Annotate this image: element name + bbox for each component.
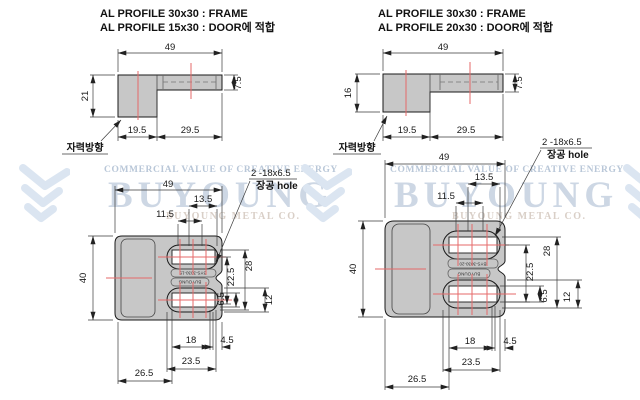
dim-115: 11.5 — [437, 191, 455, 202]
magnet-direction-label: 자력방향 — [67, 141, 105, 154]
dim-65: 6.5 — [216, 292, 227, 305]
right-title-line2: AL PROFILE 20x30 : DOOR에 적합 — [378, 20, 553, 34]
dim-135: 13.5 — [194, 194, 213, 205]
magnet-direction-label: 자력방향 — [339, 141, 377, 154]
dim-45: 4.5 — [503, 336, 516, 347]
dim-18: 18 — [186, 335, 197, 346]
left-side-dimension-lines — [93, 53, 234, 137]
marking-model-text: BYS-3030-20 — [459, 262, 487, 267]
dim-foot-right: 29.5 — [181, 125, 200, 136]
left-side-view: 49 21 7.5 19.5 29.5 자력방향 — [62, 42, 244, 154]
slot-note-line1: 2 -18x6.5 — [251, 168, 291, 179]
dim-45: 4.5 — [220, 335, 233, 346]
dim-12: 12 — [264, 295, 275, 306]
dim-12: 12 — [562, 292, 573, 303]
slot-note-line2: 장공 hole — [256, 179, 298, 192]
dim-18: 18 — [465, 336, 476, 347]
left-plan-view: BYS-3030-15 BUYOUNG — [78, 168, 298, 384]
dim-235: 23.5 — [462, 357, 481, 368]
slot-note-leader — [495, 150, 541, 236]
dim-28: 28 — [244, 261, 255, 272]
dim-65: 6.5 — [539, 289, 550, 302]
right-side-extension-lines — [355, 49, 519, 141]
right-profile-titles: AL PROFILE 30x30 : FRAME AL PROFILE 20x3… — [378, 8, 553, 34]
left-title-line1: AL PROFILE 30x30 : FRAME — [100, 8, 248, 20]
dim-foot-left: 19.5 — [128, 125, 147, 136]
dim-225: 22.5 — [525, 263, 536, 282]
slot-note-line2: 장공 hole — [547, 148, 589, 161]
left-profile-titles: AL PROFILE 30x30 : FRAME AL PROFILE 15x3… — [100, 8, 275, 34]
left-side-extension-lines — [90, 49, 238, 141]
dim-235: 23.5 — [182, 356, 201, 367]
dim-265: 26.5 — [135, 368, 154, 379]
dim-135: 13.5 — [475, 172, 494, 183]
drawing-sheet: COMMERCIAL VALUE OF CREATIVE ENERGY BUYO… — [0, 0, 640, 400]
dim-40: 40 — [78, 273, 89, 284]
slot-note-line1: 2 -18x6.5 — [542, 137, 582, 148]
dim-width: 49 — [165, 42, 176, 53]
dim-plan-width: 49 — [163, 179, 174, 190]
right-title-line1: AL PROFILE 30x30 : FRAME — [378, 8, 526, 20]
right-plan-view: BYS-3030-20 BUYOUNG — [348, 137, 592, 390]
left-side-profile-shape — [118, 75, 222, 117]
dim-40: 40 — [348, 264, 359, 275]
dim-lip: 7.5 — [233, 76, 244, 89]
dim-225: 22.5 — [226, 268, 237, 287]
dim-265: 26.5 — [408, 374, 427, 385]
right-side-view: 49 16 7.5 19.5 29.5 자력방향 — [333, 42, 525, 154]
dim-28: 28 — [542, 246, 553, 257]
dim-foot-right: 29.5 — [457, 125, 476, 136]
marking-brand-text: BUYOUNG — [178, 280, 201, 285]
right-side-dimension-lines — [357, 53, 515, 137]
dim-plan-width: 49 — [439, 152, 450, 163]
technical-drawing: AL PROFILE 30x30 : FRAME AL PROFILE 15x3… — [0, 0, 640, 400]
left-title-line2: AL PROFILE 15x30 : DOOR에 적합 — [100, 20, 275, 34]
dim-lip: 7.5 — [514, 76, 525, 89]
marking-brand-text: BUYOUNG — [457, 272, 480, 277]
dim-115: 11.5 — [156, 209, 174, 220]
dim-height: 16 — [343, 88, 354, 99]
right-side-profile-shape — [383, 74, 503, 112]
dim-foot-left: 19.5 — [398, 125, 417, 136]
dim-height: 21 — [80, 91, 91, 102]
dim-width: 49 — [438, 42, 449, 53]
